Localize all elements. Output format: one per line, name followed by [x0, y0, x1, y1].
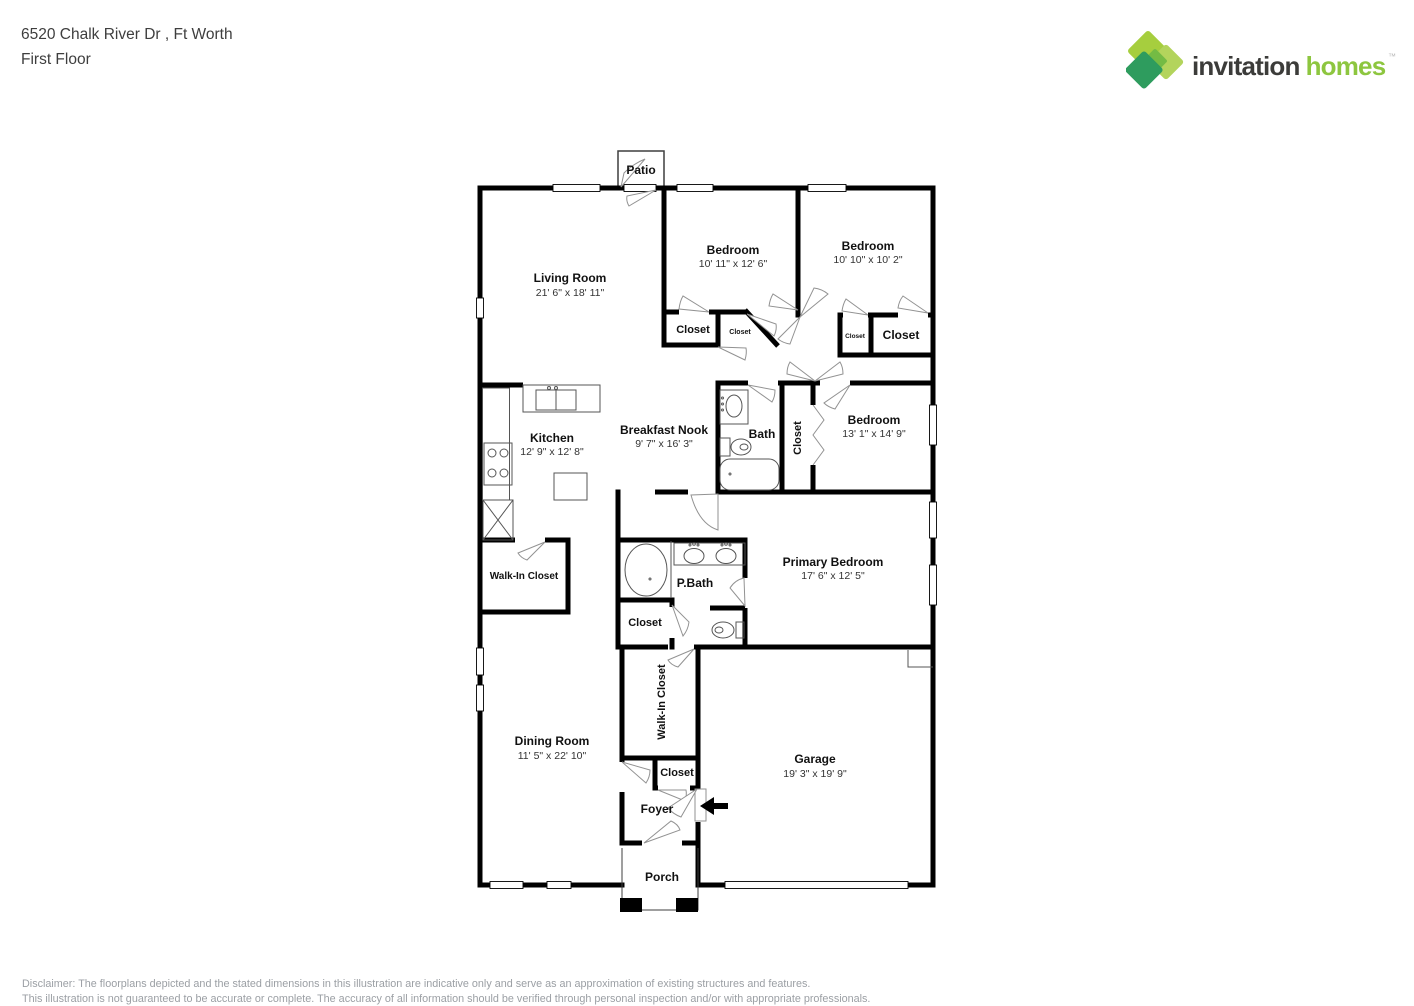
door-closet-pbath [672, 605, 689, 636]
window [930, 405, 937, 445]
room-label-closet-bedroom2: Closet [883, 328, 920, 342]
bath-toilet-tank [720, 438, 730, 456]
garage-door [725, 882, 908, 889]
room-dims-bedroom1: 10' 11" x 12' 6" [699, 258, 768, 270]
floorplan-svg: Patio Living Room 21' 6" x 18' 11" Bedro… [0, 0, 1414, 1000]
room-label-foyer: Foyer [641, 802, 674, 816]
door-walkin-closet-foyer [668, 649, 694, 667]
room-label-bath: Bath [749, 427, 776, 441]
door-closet-bedroom1 [679, 296, 709, 312]
pbath-tub [625, 544, 667, 596]
door-hall-diagonal [747, 314, 776, 336]
door-bedroom1 [769, 294, 798, 310]
room-label-living-room: Living Room [534, 271, 607, 285]
door-closet-hall-small [718, 347, 746, 360]
window [547, 882, 571, 889]
room-label-patio: Patio [626, 163, 655, 177]
kitchen-counter-top [523, 385, 600, 412]
room-label-closet-hall-bath: Closet [792, 421, 804, 455]
door-closet-bedroom2-small [842, 299, 868, 315]
door-primary-suite [691, 494, 718, 530]
room-label-closet-pbath: Closet [628, 617, 662, 629]
room-dims-primary-bedroom: 17' 6" x 12' 5" [801, 570, 865, 582]
bath-sink [726, 395, 742, 417]
pbath-sink-left [684, 549, 704, 564]
door-closet-bedroom2 [898, 296, 928, 313]
door-bath [748, 385, 775, 402]
room-dims-garage: 19' 3" x 19' 9" [783, 768, 847, 780]
stove [484, 443, 512, 485]
room-label-bedroom1: Bedroom [707, 243, 760, 257]
window [490, 882, 523, 889]
kitchen-counter-left [483, 388, 510, 500]
room-label-porch: Porch [645, 870, 679, 884]
door-walkin-closet-main [518, 542, 545, 560]
room-label-breakfast-nook: Breakfast Nook [620, 423, 708, 437]
window [930, 502, 937, 538]
room-label-kitchen: Kitchen [530, 431, 574, 445]
room-label-walkin-closet-foyer: Walk-In Closet [656, 664, 668, 740]
room-dims-living-room: 21' 6" x 18' 11" [536, 287, 605, 299]
room-label-bedroom3: Bedroom [848, 413, 901, 427]
door-hallway-right [815, 362, 843, 381]
door-bedroom2-hall [778, 317, 800, 344]
room-label-primary-bedroom: Primary Bedroom [783, 555, 884, 569]
room-label-dining-room: Dining Room [515, 734, 590, 748]
door-dining-foyer [622, 762, 650, 783]
porch-post-right [676, 898, 698, 912]
room-dims-breakfast-nook: 9' 7" x 16' 3" [635, 438, 693, 450]
room-dims-dining-room: 11' 5" x 22' 10" [518, 750, 587, 762]
room-label-closet-foyer: Closet [660, 767, 694, 779]
window [808, 185, 846, 192]
patio-slider-door [624, 185, 656, 192]
room-label-closet-bedroom2-small: Closet [845, 333, 866, 340]
door-pbath [730, 578, 745, 606]
disclaimer: Disclaimer: The floorplans depicted and … [22, 977, 1272, 1006]
disclaimer-line2: This illustration is not guaranteed to b… [22, 992, 1272, 1006]
room-label-walkin-closet-main: Walk-In Closet [490, 571, 559, 582]
door-front [644, 821, 680, 843]
window [677, 185, 713, 192]
door-patio [627, 190, 656, 206]
room-dims-kitchen: 12' 9" x 12' 8" [520, 446, 584, 458]
room-label-garage: Garage [794, 752, 836, 766]
bifold-closet-bedroom3 [813, 405, 824, 465]
door-bedroom2 [800, 288, 828, 317]
pbath-sink-right [716, 549, 736, 564]
window [930, 565, 937, 605]
room-label-bedroom2: Bedroom [842, 239, 895, 253]
room-label-closet-bedroom1-small: Closet [729, 329, 751, 336]
door-hallway-left [787, 362, 815, 381]
window [477, 298, 484, 318]
room-dims-bedroom3: 13' 1" x 14' 9" [842, 428, 906, 440]
porch-post-left [620, 898, 642, 912]
window [477, 685, 484, 711]
window [477, 648, 484, 675]
disclaimer-line1: Disclaimer: The floorplans depicted and … [22, 977, 1272, 992]
door-bedroom3 [824, 385, 850, 409]
room-label-closet-bedroom1: Closet [676, 324, 710, 336]
garage-notch [908, 650, 933, 667]
room-label-pbath: P.Bath [677, 576, 713, 590]
room-dims-bedroom2: 10' 10" x 10' 2" [833, 254, 903, 266]
kitchen-island [554, 473, 587, 500]
window [553, 185, 600, 192]
